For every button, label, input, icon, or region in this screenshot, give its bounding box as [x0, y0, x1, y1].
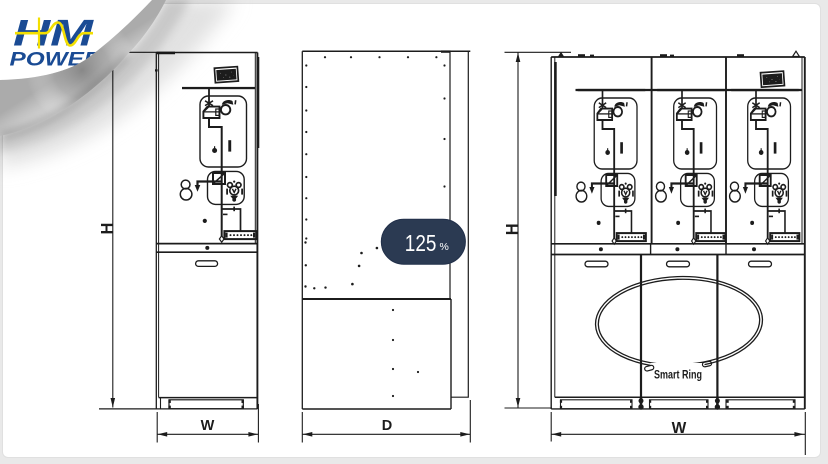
svg-text:H: H [504, 223, 522, 235]
svg-text:H: H [98, 223, 116, 235]
svg-text:125: 125 [405, 230, 437, 256]
svg-text:W: W [672, 420, 687, 437]
svg-text:D: D [382, 418, 392, 434]
svg-text:%: % [440, 241, 449, 253]
svg-text:W: W [201, 418, 215, 434]
svg-text:Smart Ring: Smart Ring [654, 370, 702, 382]
